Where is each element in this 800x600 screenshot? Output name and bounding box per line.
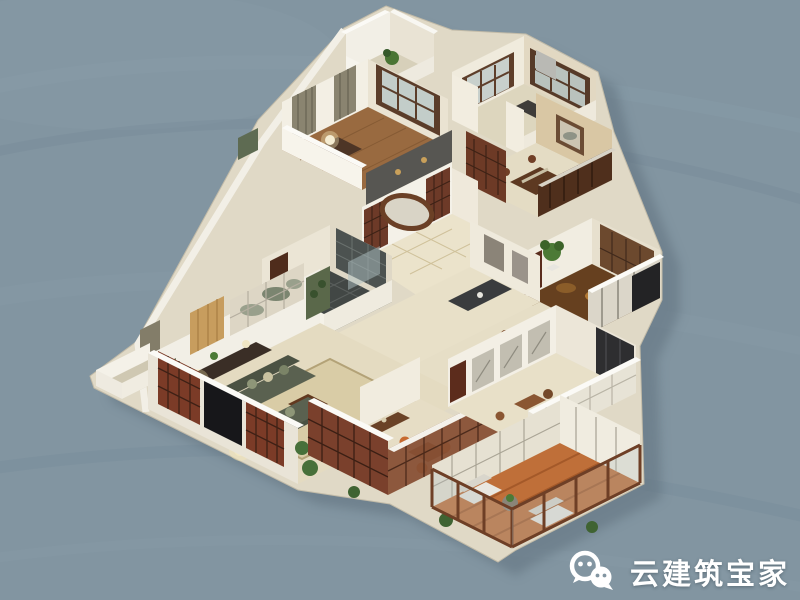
- alcove-light: [421, 157, 427, 163]
- potted-plant: [383, 49, 391, 57]
- plant: [295, 441, 309, 455]
- plant: [302, 460, 318, 476]
- cushion: [263, 372, 273, 382]
- cushion: [279, 365, 289, 375]
- floor-glow: [556, 283, 576, 293]
- floorplan-render: [0, 0, 800, 600]
- plant: [506, 494, 514, 502]
- kitchen-sw-wall: [506, 101, 524, 156]
- plant: [586, 521, 598, 533]
- picture-landscape: [563, 132, 577, 140]
- art-smudge: [286, 279, 302, 289]
- dining-chair: [528, 155, 536, 163]
- plant: [348, 486, 360, 498]
- art-smudge: [240, 304, 264, 316]
- plant: [210, 352, 218, 360]
- cushion: [247, 379, 257, 389]
- watermark: 云建筑宝家: [566, 550, 790, 594]
- foliage: [310, 290, 318, 298]
- chair: [496, 412, 505, 421]
- shelf-item: [382, 418, 387, 423]
- desk-lamp: [325, 135, 335, 145]
- foliage: [554, 241, 564, 251]
- foliage: [540, 240, 550, 250]
- wechat-icon: [566, 550, 618, 594]
- watermark-text: 云建筑宝家: [630, 551, 790, 593]
- alcove-light: [395, 169, 401, 175]
- decor-item: [477, 292, 483, 298]
- side-table: [543, 389, 553, 399]
- foliage: [318, 280, 326, 288]
- cushion: [285, 407, 295, 417]
- table-lamp: [242, 340, 250, 348]
